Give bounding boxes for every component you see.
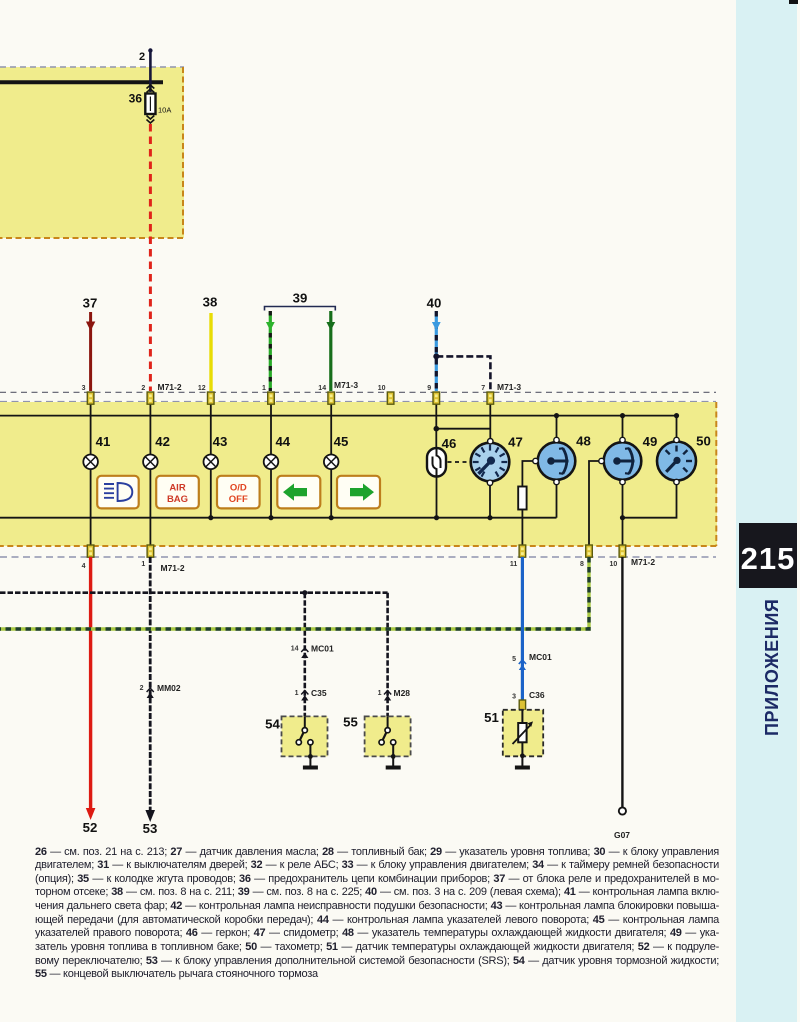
svg-text:C36: C36 xyxy=(529,690,545,700)
svg-text:5: 5 xyxy=(512,656,516,663)
svg-text:14: 14 xyxy=(318,385,326,392)
svg-text:10: 10 xyxy=(378,385,386,392)
svg-text:M71-3: M71-3 xyxy=(334,380,358,390)
svg-text:O/D: O/D xyxy=(230,483,247,494)
svg-text:45: 45 xyxy=(334,434,349,449)
svg-text:14: 14 xyxy=(291,646,299,653)
svg-text:50: 50 xyxy=(696,434,711,449)
svg-text:48: 48 xyxy=(576,434,591,449)
svg-text:M71-2: M71-2 xyxy=(161,563,185,573)
svg-text:55: 55 xyxy=(343,715,358,730)
svg-text:2: 2 xyxy=(140,685,144,692)
svg-text:40: 40 xyxy=(427,296,442,311)
svg-text:47: 47 xyxy=(508,435,523,450)
svg-text:3: 3 xyxy=(82,385,86,392)
svg-text:1: 1 xyxy=(378,690,382,697)
svg-text:36: 36 xyxy=(129,92,143,106)
svg-text:2: 2 xyxy=(141,385,145,392)
svg-text:51: 51 xyxy=(484,710,499,725)
svg-text:46: 46 xyxy=(442,436,457,451)
svg-text:49: 49 xyxy=(643,434,658,449)
svg-text:M71-2: M71-2 xyxy=(158,382,182,392)
svg-text:10: 10 xyxy=(610,561,618,568)
svg-text:3: 3 xyxy=(512,694,516,701)
svg-text:G07: G07 xyxy=(614,830,630,840)
svg-text:42: 42 xyxy=(155,434,170,449)
svg-text:9: 9 xyxy=(427,385,431,392)
svg-text:43: 43 xyxy=(213,434,228,449)
svg-text:39: 39 xyxy=(293,291,308,306)
svg-text:54: 54 xyxy=(265,717,280,732)
svg-text:1: 1 xyxy=(141,561,145,568)
svg-text:BAG: BAG xyxy=(167,494,188,505)
svg-text:1: 1 xyxy=(295,690,299,697)
svg-text:4: 4 xyxy=(82,563,86,570)
svg-text:MM02: MM02 xyxy=(157,683,181,693)
svg-text:M28: M28 xyxy=(394,688,411,698)
svg-text:MC01: MC01 xyxy=(529,652,552,662)
svg-text:7: 7 xyxy=(481,385,485,392)
svg-text:52: 52 xyxy=(83,820,98,835)
svg-text:MC01: MC01 xyxy=(311,644,334,654)
svg-text:OFF: OFF xyxy=(229,494,248,505)
svg-text:M71-2: M71-2 xyxy=(631,557,655,567)
svg-text:1: 1 xyxy=(262,385,266,392)
svg-text:AIR: AIR xyxy=(169,483,186,494)
svg-text:C35: C35 xyxy=(311,688,327,698)
svg-text:38: 38 xyxy=(203,295,218,310)
svg-text:44: 44 xyxy=(275,434,290,449)
svg-text:41: 41 xyxy=(96,434,111,449)
svg-text:2: 2 xyxy=(139,51,145,63)
svg-text:M71-3: M71-3 xyxy=(497,382,521,392)
svg-text:53: 53 xyxy=(143,821,158,836)
svg-text:12: 12 xyxy=(198,385,206,392)
svg-text:10A: 10A xyxy=(158,106,171,115)
svg-text:11: 11 xyxy=(510,561,518,568)
svg-text:37: 37 xyxy=(83,296,98,311)
svg-text:8: 8 xyxy=(580,561,584,568)
